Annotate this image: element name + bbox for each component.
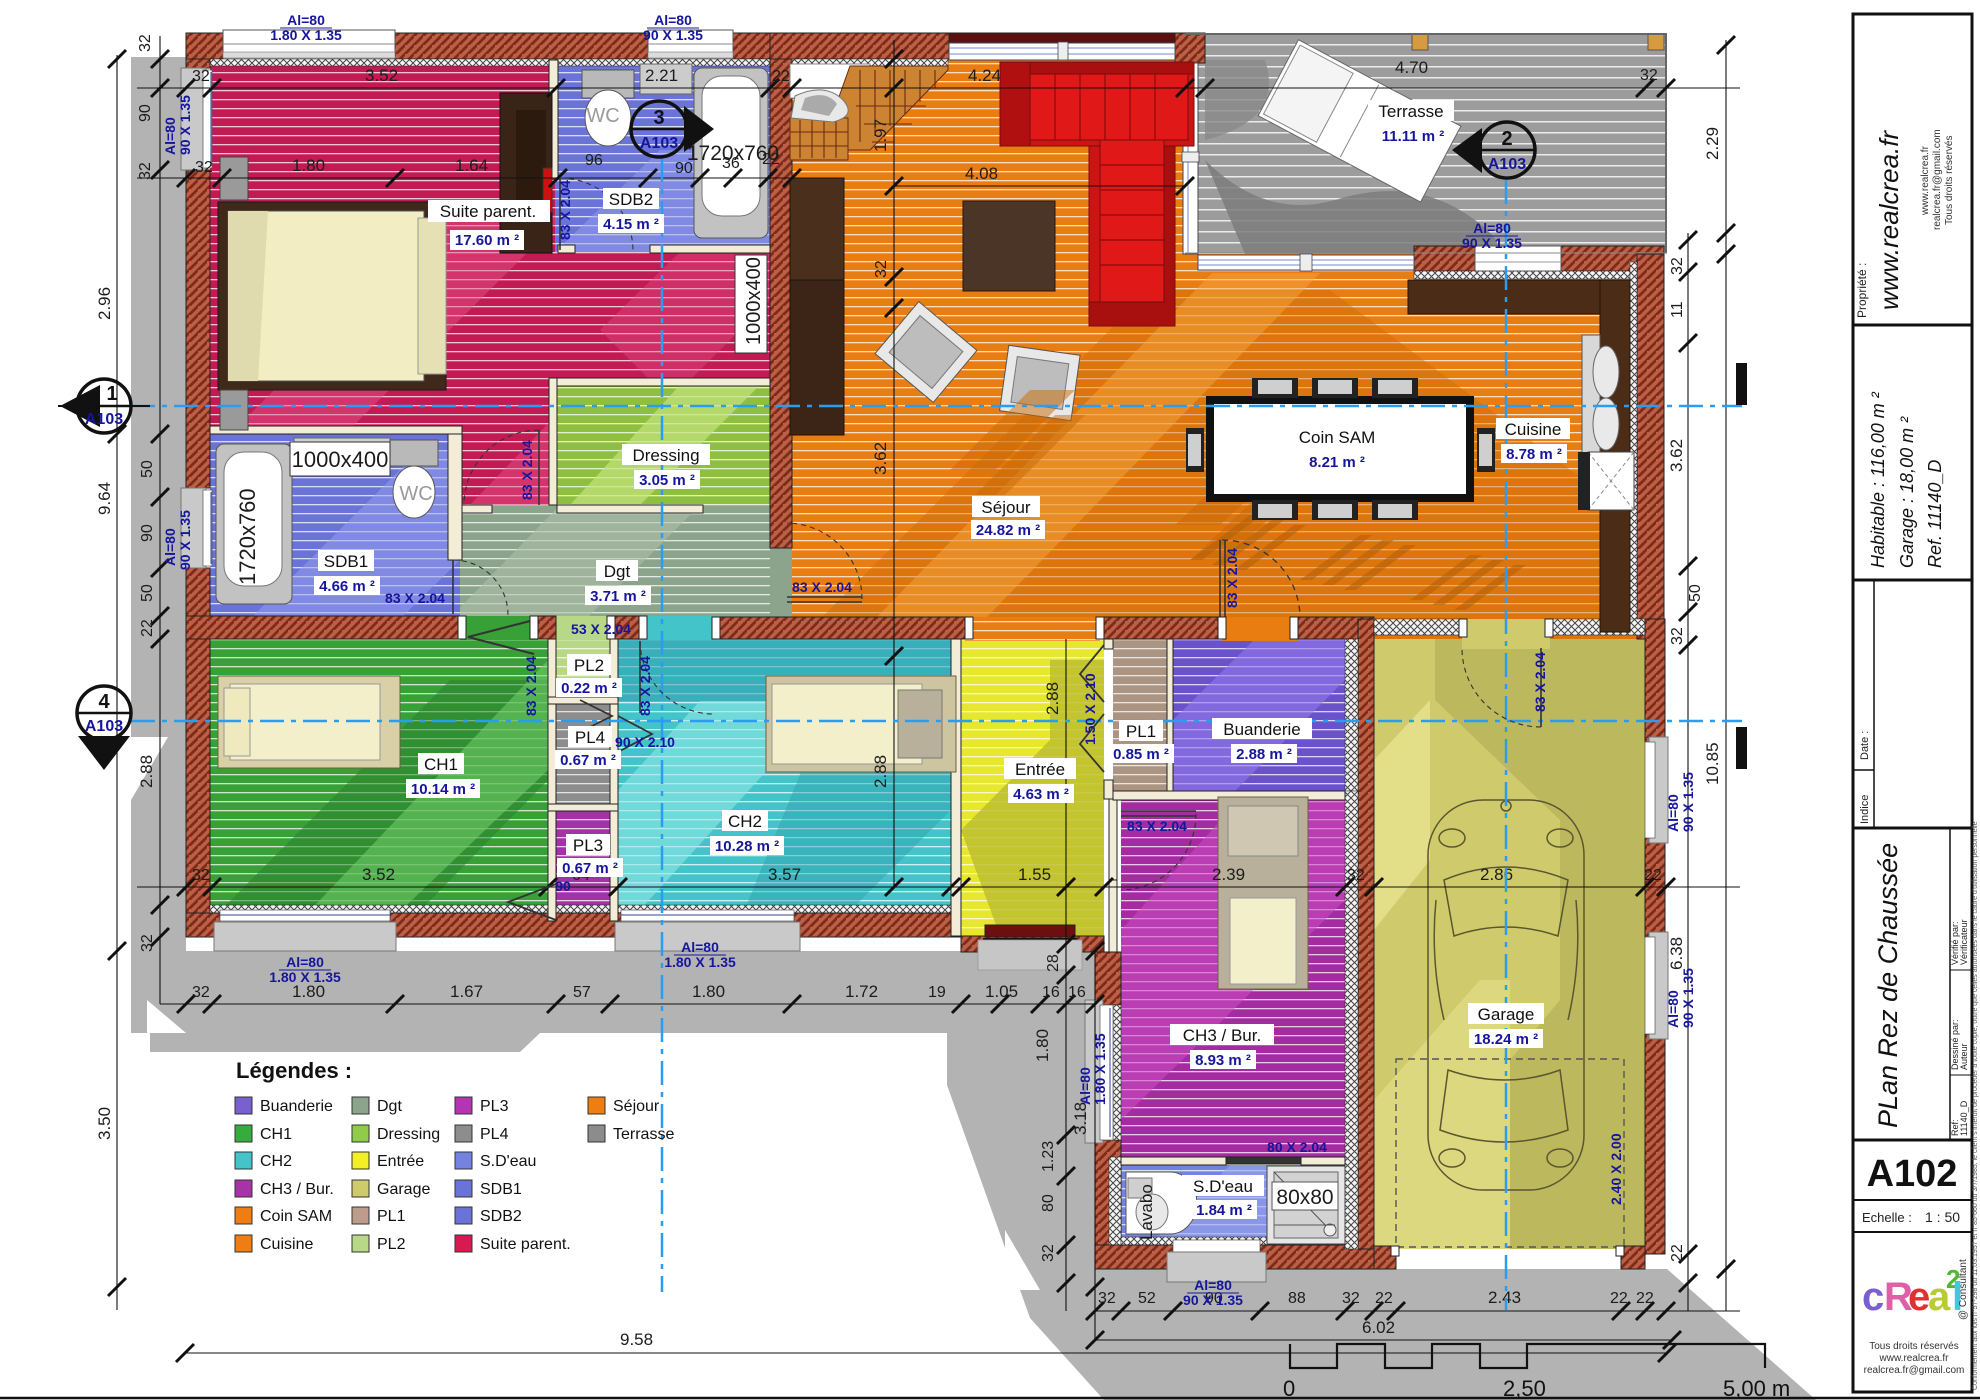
svg-text:96: 96	[585, 152, 603, 169]
svg-text:SDB2: SDB2	[609, 190, 653, 209]
svg-text:90 X 1.35: 90 X 1.35	[1462, 235, 1522, 251]
svg-text:32: 32	[137, 162, 154, 180]
svg-text:32: 32	[137, 34, 154, 52]
svg-text:CH1: CH1	[424, 755, 458, 774]
svg-text:1720x760: 1720x760	[687, 142, 779, 165]
svg-text:83 X 2.04: 83 X 2.04	[792, 579, 852, 595]
svg-text:PL2: PL2	[574, 656, 604, 675]
svg-text:1720x760: 1720x760	[235, 488, 260, 585]
svg-text:PL1: PL1	[377, 1208, 406, 1225]
svg-text:4.70: 4.70	[1395, 58, 1428, 77]
svg-text:1.64: 1.64	[455, 156, 488, 175]
svg-text:2.40 X 2.00: 2.40 X 2.00	[1608, 1133, 1624, 1205]
svg-text:Tous droits réservés: Tous droits réservés	[1869, 1341, 1958, 1352]
svg-text:0.67 m ²: 0.67 m ²	[560, 752, 616, 769]
svg-text:0.67 m ²: 0.67 m ²	[562, 860, 618, 877]
svg-text:www.realcrea.fr: www.realcrea.fr	[1874, 130, 1904, 310]
svg-text:Dgt: Dgt	[604, 562, 631, 581]
svg-text:50: 50	[139, 584, 156, 602]
svg-text:8.78 m ²: 8.78 m ²	[1506, 446, 1562, 463]
svg-text:PL3: PL3	[480, 1098, 509, 1115]
svg-text:CH3 / Bur.: CH3 / Bur.	[1183, 1026, 1261, 1045]
svg-text:1 : 50: 1 : 50	[1925, 1209, 1960, 1225]
svg-text:Coin SAM: Coin SAM	[260, 1208, 332, 1225]
svg-text:32: 32	[195, 159, 213, 176]
svg-text:PL4: PL4	[480, 1126, 509, 1143]
svg-text:1.80 X 1.35: 1.80 X 1.35	[270, 27, 342, 43]
svg-text:32: 32	[192, 867, 210, 884]
svg-text:0.85 m ²: 0.85 m ²	[1113, 746, 1169, 763]
svg-text:1.80 X 1.35: 1.80 X 1.35	[664, 954, 736, 970]
svg-text:22: 22	[1610, 1290, 1628, 1307]
svg-text:50: 50	[139, 460, 156, 478]
svg-text:1.80: 1.80	[292, 156, 325, 175]
svg-text:8.93 m ²: 8.93 m ²	[1195, 1052, 1251, 1069]
svg-text:19: 19	[928, 984, 946, 1001]
svg-text:SDB1: SDB1	[324, 552, 368, 571]
svg-text:32: 32	[1040, 1244, 1057, 1262]
svg-text:Echelle :: Echelle :	[1862, 1210, 1912, 1225]
svg-text:83 X 2.04: 83 X 2.04	[519, 440, 535, 500]
svg-text:3.50: 3.50	[95, 1107, 114, 1140]
svg-text:6.38: 6.38	[1667, 937, 1686, 970]
svg-text:32: 32	[192, 68, 210, 85]
svg-text:CH2: CH2	[260, 1153, 292, 1170]
svg-text:4.24: 4.24	[968, 66, 1001, 85]
svg-text:90: 90	[139, 524, 156, 542]
svg-text:Cuisine: Cuisine	[260, 1236, 313, 1253]
svg-text:WC: WC	[586, 105, 619, 127]
svg-text:2.43: 2.43	[1488, 1288, 1521, 1307]
svg-text:realcrea.fr@gmail.com: realcrea.fr@gmail.com	[1864, 1365, 1965, 1376]
svg-text:3.05 m ²: 3.05 m ²	[639, 472, 695, 489]
svg-text:A103: A103	[85, 718, 123, 735]
svg-text:16: 16	[1068, 984, 1086, 1001]
svg-text:2.39: 2.39	[1212, 865, 1245, 884]
svg-text:32: 32	[873, 260, 890, 278]
svg-text:32: 32	[1669, 257, 1686, 275]
svg-text:Coin SAM: Coin SAM	[1299, 428, 1376, 447]
svg-text:11.11 m ²: 11.11 m ²	[1382, 128, 1445, 145]
svg-text:16: 16	[1042, 984, 1060, 1001]
svg-text:Al=80: Al=80	[681, 939, 719, 955]
svg-text:18.24 m ²: 18.24 m ²	[1474, 1031, 1538, 1048]
svg-text:90 X 1.35: 90 X 1.35	[1680, 968, 1696, 1028]
svg-text:22: 22	[139, 619, 156, 637]
svg-text:2.96: 2.96	[95, 287, 114, 320]
svg-text:8.21 m ²: 8.21 m ²	[1309, 454, 1365, 471]
svg-text:1.23: 1.23	[1040, 1141, 1057, 1172]
svg-text:4.08: 4.08	[965, 164, 998, 183]
svg-text:32: 32	[1342, 1290, 1360, 1307]
svg-text:2.88 m ²: 2.88 m ²	[1236, 746, 1292, 763]
svg-text:3.57: 3.57	[768, 865, 801, 884]
svg-text:83 X 2.04: 83 X 2.04	[1224, 548, 1240, 608]
svg-text:80: 80	[1040, 1194, 1057, 1212]
svg-text:@ Consultant: @ Consultant	[1958, 1259, 1969, 1320]
svg-text:Vérificateur: Vérificateur	[1959, 919, 1969, 965]
svg-text:www.realcrea.fr: www.realcrea.fr	[1879, 1353, 1950, 1364]
svg-text:e: e	[1908, 1275, 1930, 1319]
svg-text:PL4: PL4	[575, 728, 605, 747]
svg-text:32: 32	[1669, 627, 1686, 645]
svg-text:80x80: 80x80	[1276, 1186, 1333, 1209]
svg-text:Al=80: Al=80	[287, 12, 325, 28]
svg-text:11: 11	[1669, 301, 1686, 318]
svg-text:Tous droits réservés: Tous droits réservés	[1944, 136, 1955, 225]
svg-text:Garage: Garage	[377, 1181, 430, 1198]
svg-text:90 X 1.35: 90 X 1.35	[1680, 772, 1696, 832]
svg-text:4.66 m ²: 4.66 m ²	[319, 578, 375, 595]
svg-text:1.67: 1.67	[450, 982, 483, 1001]
svg-text:3: 3	[653, 107, 664, 129]
svg-text:Al=80: Al=80	[1473, 220, 1511, 236]
svg-text:2.88: 2.88	[137, 755, 156, 788]
svg-text:28: 28	[1045, 954, 1062, 972]
svg-text:90: 90	[555, 878, 571, 894]
svg-text:90 X 2.10: 90 X 2.10	[615, 734, 675, 750]
svg-text:Terrasse: Terrasse	[613, 1126, 674, 1143]
svg-text:32: 32	[1640, 67, 1658, 84]
svg-text:1000x400: 1000x400	[292, 447, 389, 472]
svg-text:90 X 1.35: 90 X 1.35	[177, 95, 193, 155]
svg-text:Conformément aux lois n°57-298: Conformément aux lois n°57-298 du 11.03.…	[1971, 821, 1979, 1390]
svg-text:Al=80: Al=80	[162, 117, 178, 155]
svg-text:A103: A103	[85, 411, 123, 428]
svg-text:9.58: 9.58	[620, 1330, 653, 1349]
svg-text:A103: A103	[1488, 156, 1526, 173]
svg-text:CH1: CH1	[260, 1126, 292, 1143]
svg-text:Al=80: Al=80	[162, 528, 178, 566]
svg-text:83 X 2.04: 83 X 2.04	[523, 656, 539, 716]
svg-text:PL2: PL2	[377, 1236, 406, 1253]
svg-text:83 X 2.04: 83 X 2.04	[1127, 818, 1187, 834]
svg-text:52: 52	[1138, 1290, 1156, 1307]
svg-text:0.22 m ²: 0.22 m ²	[561, 680, 617, 697]
svg-text:90 X 1.35: 90 X 1.35	[643, 27, 703, 43]
svg-text:80 X 2.04: 80 X 2.04	[1267, 1139, 1327, 1155]
svg-text:1.05: 1.05	[985, 982, 1018, 1001]
svg-text:24.82 m ²: 24.82 m ²	[976, 522, 1040, 539]
svg-text:1.50 X 2.10: 1.50 X 2.10	[1082, 673, 1098, 745]
svg-text:17.60 m ²: 17.60 m ²	[455, 232, 519, 249]
svg-text:Al=80: Al=80	[1194, 1277, 1232, 1293]
svg-text:Habitable : 116,00 m ²: Habitable : 116,00 m ²	[1868, 391, 1888, 568]
svg-text:83 X 2.04: 83 X 2.04	[637, 656, 653, 716]
svg-text:CH3 / Bur.: CH3 / Bur.	[260, 1181, 334, 1198]
svg-text:22: 22	[1636, 1290, 1654, 1307]
svg-text:3.62: 3.62	[1667, 439, 1686, 472]
svg-text:CH2: CH2	[728, 812, 762, 831]
svg-text:3.52: 3.52	[362, 865, 395, 884]
svg-text:Garage : 18,00 m ²: Garage : 18,00 m ²	[1897, 416, 1917, 568]
svg-text:Auteur: Auteur	[1959, 1043, 1969, 1070]
svg-text:3.52: 3.52	[365, 66, 398, 85]
svg-text:Cuisine: Cuisine	[1505, 420, 1562, 439]
svg-text:9.64: 9.64	[95, 482, 114, 515]
svg-text:10.28 m ²: 10.28 m ²	[715, 838, 779, 855]
svg-text:Légendes :: Légendes :	[236, 1058, 352, 1083]
svg-text:6.02: 6.02	[1362, 1318, 1395, 1337]
svg-text:Séjour: Séjour	[981, 498, 1030, 517]
svg-text:www.realcrea.fr: www.realcrea.fr	[1920, 145, 1931, 216]
svg-text:c: c	[1862, 1275, 1884, 1319]
svg-text:1.80 X 1.35: 1.80 X 1.35	[269, 969, 341, 985]
svg-text:10.14 m ²: 10.14 m ²	[411, 781, 475, 798]
svg-text:A103: A103	[640, 135, 678, 152]
svg-text:3.18: 3.18	[1071, 1102, 1090, 1135]
svg-text:Lavabo: Lavabo	[1137, 1184, 1156, 1240]
svg-text:S.D'eau: S.D'eau	[1193, 1177, 1253, 1196]
svg-text:2,50: 2,50	[1503, 1376, 1546, 1400]
svg-text:2.86: 2.86	[1480, 865, 1513, 884]
svg-text:A102: A102	[1867, 1153, 1958, 1195]
svg-text:Al=80: Al=80	[1665, 990, 1681, 1028]
svg-text:50: 50	[1687, 584, 1704, 602]
svg-text:5,00 m: 5,00 m	[1723, 1376, 1790, 1400]
svg-text:2.88: 2.88	[1043, 682, 1062, 715]
svg-text:Séjour: Séjour	[613, 1098, 660, 1115]
svg-text:PL1: PL1	[1126, 722, 1156, 741]
svg-text:SDB1: SDB1	[480, 1181, 522, 1198]
svg-text:PL3: PL3	[573, 836, 603, 855]
svg-text:Buanderie: Buanderie	[260, 1098, 333, 1115]
svg-text:2: 2	[1501, 128, 1512, 150]
svg-text:11140_D: 11140_D	[1959, 1100, 1969, 1136]
svg-text:1.97: 1.97	[871, 119, 890, 152]
svg-text:22: 22	[772, 68, 790, 85]
svg-text:57: 57	[573, 984, 591, 1001]
svg-text:22: 22	[1669, 1244, 1686, 1262]
svg-text:1.55: 1.55	[1018, 865, 1051, 884]
svg-text:3.62: 3.62	[871, 442, 890, 475]
svg-text:90 X 1.35: 90 X 1.35	[1183, 1292, 1243, 1308]
svg-text:83 X 2.04: 83 X 2.04	[557, 180, 573, 240]
svg-text:1.80: 1.80	[1033, 1029, 1052, 1062]
svg-text:Garage: Garage	[1478, 1005, 1535, 1024]
svg-text:Dressing: Dressing	[377, 1126, 440, 1143]
svg-text:1000x400: 1000x400	[743, 257, 765, 345]
svg-text:32: 32	[139, 934, 156, 952]
svg-text:Indice: Indice	[1859, 795, 1871, 824]
svg-text:PLan Rez de Chaussée: PLan Rez de Chaussée	[1873, 843, 1903, 1128]
svg-text:83 X 2.04: 83 X 2.04	[1532, 652, 1548, 712]
svg-text:Al=80: Al=80	[1665, 794, 1681, 832]
svg-text:Entrée: Entrée	[1015, 760, 1065, 779]
svg-text:realcrea.fr@gmail.com: realcrea.fr@gmail.com	[1932, 129, 1943, 230]
svg-text:Date :: Date :	[1859, 731, 1871, 760]
svg-text:32: 32	[1347, 867, 1365, 884]
svg-text:1.80 X 1.35: 1.80 X 1.35	[1092, 1033, 1108, 1105]
svg-text:Dgt: Dgt	[377, 1098, 402, 1115]
svg-text:53 X 2.04: 53 X 2.04	[571, 621, 631, 637]
svg-text:0: 0	[1283, 1376, 1295, 1400]
svg-text:Suite parent.: Suite parent.	[440, 202, 536, 221]
svg-text:1.72: 1.72	[845, 982, 878, 1001]
svg-text:Al=80: Al=80	[286, 954, 324, 970]
svg-text:4: 4	[98, 691, 110, 713]
svg-text:10.85: 10.85	[1703, 742, 1722, 785]
svg-text:22: 22	[1375, 1290, 1393, 1307]
svg-text:2.88: 2.88	[871, 755, 890, 788]
svg-text:Al=80: Al=80	[654, 12, 692, 28]
svg-text:S.D'eau: S.D'eau	[480, 1153, 536, 1170]
svg-text:3.71 m ²: 3.71 m ²	[590, 588, 646, 605]
svg-text:83 X 2.04: 83 X 2.04	[385, 590, 445, 606]
svg-text:Entrée: Entrée	[377, 1153, 424, 1170]
svg-text:Propriété :: Propriété :	[1855, 263, 1869, 318]
svg-text:Suite parent.: Suite parent.	[480, 1236, 571, 1253]
svg-text:Terrasse: Terrasse	[1378, 102, 1443, 121]
svg-text:2.29: 2.29	[1703, 127, 1722, 160]
svg-text:Buanderie: Buanderie	[1223, 720, 1301, 739]
svg-text:2.21: 2.21	[645, 66, 678, 85]
svg-text:4.63 m ²: 4.63 m ²	[1013, 786, 1069, 803]
svg-text:1: 1	[106, 383, 117, 405]
svg-text:WC: WC	[399, 483, 432, 505]
svg-text:1.84 m ²: 1.84 m ²	[1196, 1202, 1252, 1219]
svg-text:Dressing: Dressing	[632, 446, 699, 465]
svg-text:22: 22	[1644, 867, 1662, 884]
svg-text:90 X 1.35: 90 X 1.35	[177, 510, 193, 570]
svg-text:32: 32	[192, 984, 210, 1001]
svg-text:90: 90	[137, 104, 154, 122]
svg-text:SDB2: SDB2	[480, 1208, 522, 1225]
svg-text:32: 32	[1098, 1290, 1116, 1307]
svg-text:4.15 m ²: 4.15 m ²	[603, 216, 659, 233]
svg-text:88: 88	[1288, 1290, 1306, 1307]
svg-text:Ref. 11140_D: Ref. 11140_D	[1925, 460, 1945, 568]
svg-text:1.80: 1.80	[692, 982, 725, 1001]
svg-text:Al=80: Al=80	[1077, 1067, 1093, 1105]
